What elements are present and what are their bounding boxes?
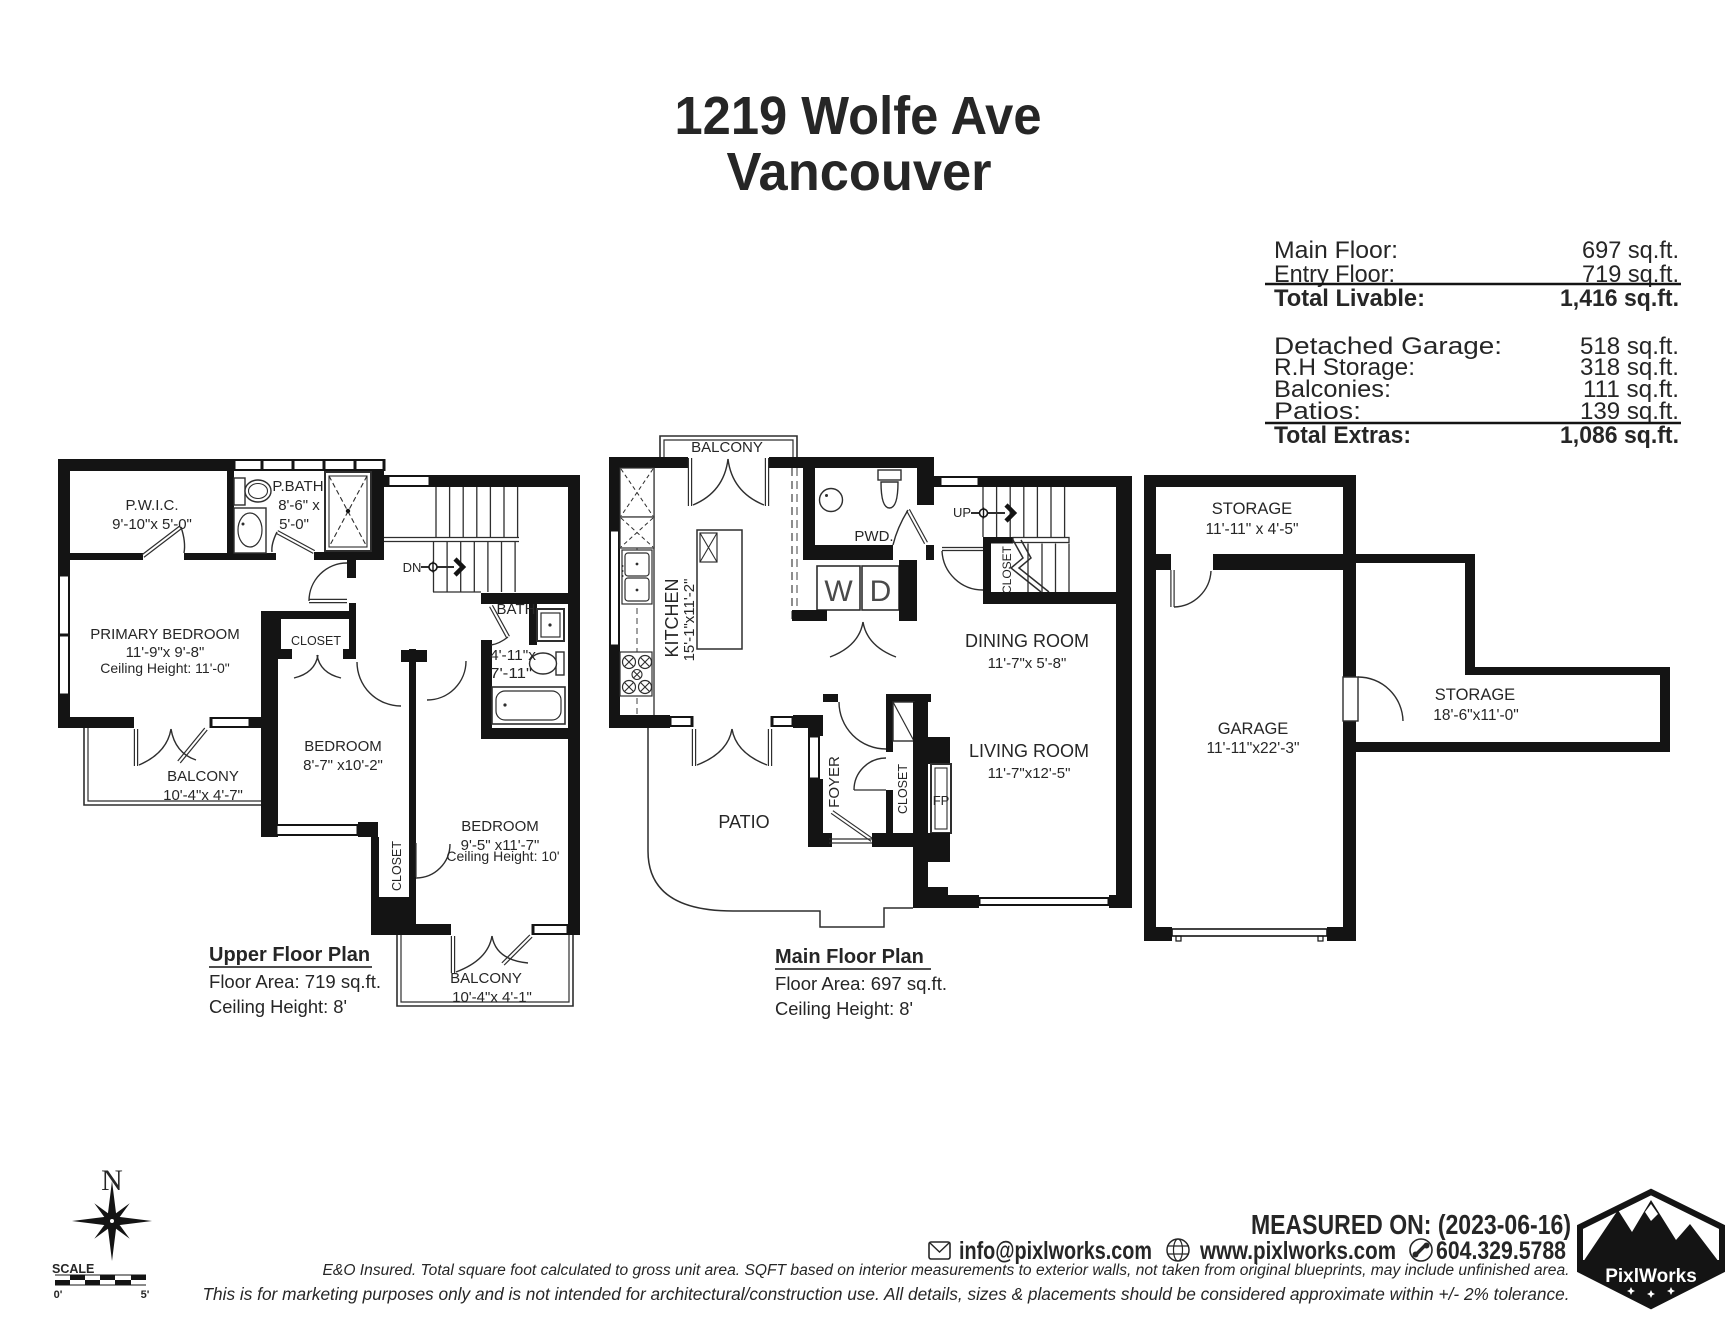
svg-text:FOYER: FOYER bbox=[826, 756, 843, 808]
svg-text:Total Extras:: Total Extras: bbox=[1274, 422, 1411, 449]
svg-text:1,416 sq.ft.: 1,416 sq.ft. bbox=[1560, 285, 1679, 312]
svg-text:Main Floor:: Main Floor: bbox=[1274, 237, 1398, 264]
svg-text:0': 0' bbox=[54, 1289, 63, 1301]
svg-text:Floor Area: 719 sq.ft.: Floor Area: 719 sq.ft. bbox=[209, 971, 381, 992]
svg-text:BALCONY: BALCONY bbox=[691, 439, 763, 456]
svg-text:11'-11"x22'-3": 11'-11"x22'-3" bbox=[1206, 740, 1299, 757]
svg-text:This is for marketing purposes: This is for marketing purposes only and … bbox=[203, 1284, 1570, 1304]
svg-text:5': 5' bbox=[141, 1289, 150, 1301]
svg-text:W: W bbox=[824, 575, 853, 608]
svg-text:7'-11": 7'-11" bbox=[490, 665, 532, 682]
svg-text:PWD.: PWD. bbox=[854, 528, 893, 545]
svg-text:697 sq.ft.: 697 sq.ft. bbox=[1582, 237, 1679, 264]
svg-text:FP: FP bbox=[933, 793, 950, 808]
svg-text:P.W.I.C.: P.W.I.C. bbox=[125, 497, 178, 514]
svg-text:DINING ROOM: DINING ROOM bbox=[965, 631, 1089, 651]
svg-text:Ceiling Height: 8': Ceiling Height: 8' bbox=[775, 998, 913, 1019]
svg-text:UP: UP bbox=[953, 505, 971, 520]
svg-text:8'-6" x: 8'-6" x bbox=[278, 497, 320, 514]
svg-text:BALCONY: BALCONY bbox=[167, 768, 239, 785]
svg-text:CLOSET: CLOSET bbox=[896, 764, 910, 814]
svg-text:5'-0": 5'-0" bbox=[279, 516, 309, 533]
svg-text:Ceiling Height: 8': Ceiling Height: 8' bbox=[209, 996, 347, 1017]
svg-text:10'-4"x 4'-1": 10'-4"x 4'-1" bbox=[452, 989, 532, 1006]
svg-text:E&O Insured. Total square foo: E&O Insured. Total square foot calculate… bbox=[323, 1262, 1570, 1279]
svg-text:KITCHEN: KITCHEN bbox=[662, 578, 682, 657]
svg-text:PixlWorks: PixlWorks bbox=[1605, 1266, 1697, 1287]
svg-text:Ceiling Height: 11'-0": Ceiling Height: 11'-0" bbox=[100, 660, 230, 676]
svg-text:Total Livable:: Total Livable: bbox=[1274, 285, 1425, 312]
svg-text:BALCONY: BALCONY bbox=[450, 970, 522, 987]
svg-text:P.BATH: P.BATH bbox=[272, 478, 323, 495]
svg-text:Patios:: Patios: bbox=[1274, 398, 1361, 425]
svg-text:LIVING ROOM: LIVING ROOM bbox=[969, 741, 1089, 761]
svg-text:info@pixlworks.com: info@pixlworks.com bbox=[959, 1237, 1152, 1265]
svg-text:STORAGE: STORAGE bbox=[1212, 500, 1292, 518]
svg-text:PRIMARY BEDROOM: PRIMARY BEDROOM bbox=[90, 626, 239, 643]
svg-text:604.329.5788: 604.329.5788 bbox=[1436, 1237, 1566, 1265]
svg-text:DN: DN bbox=[403, 560, 422, 575]
svg-text:11'-7"x12'-5": 11'-7"x12'-5" bbox=[988, 765, 1071, 782]
svg-text:SCALE: SCALE bbox=[52, 1262, 94, 1276]
svg-text:1,086 sq.ft.: 1,086 sq.ft. bbox=[1560, 422, 1679, 449]
svg-text:CLOSET: CLOSET bbox=[1000, 545, 1014, 594]
svg-text:BATH: BATH bbox=[497, 601, 536, 618]
svg-text:8'-7" x10'-2": 8'-7" x10'-2" bbox=[303, 757, 383, 774]
svg-text:4'-11"x: 4'-11"x bbox=[490, 647, 537, 664]
svg-text:STORAGE: STORAGE bbox=[1435, 686, 1515, 704]
svg-text:Floor Area: 697 sq.ft.: Floor Area: 697 sq.ft. bbox=[775, 973, 947, 994]
svg-text:1219 Wolfe Ave: 1219 Wolfe Ave bbox=[675, 86, 1042, 146]
svg-text:11'-11" x 4'-5": 11'-11" x 4'-5" bbox=[1205, 521, 1298, 538]
svg-text:Main Floor Plan: Main Floor Plan bbox=[775, 946, 924, 968]
svg-text:Vancouver: Vancouver bbox=[727, 142, 992, 202]
svg-text:PATIO: PATIO bbox=[718, 812, 769, 832]
svg-text:D: D bbox=[870, 575, 892, 608]
svg-text:15'-1"x11'-2": 15'-1"x11'-2" bbox=[681, 579, 698, 662]
svg-text:9'-10"x 5'-0": 9'-10"x 5'-0" bbox=[112, 516, 192, 533]
svg-text:BEDROOM: BEDROOM bbox=[461, 818, 539, 835]
svg-text:www.pixlworks.com: www.pixlworks.com bbox=[1199, 1237, 1396, 1265]
svg-text:GARAGE: GARAGE bbox=[1218, 720, 1289, 738]
svg-text:10'-4"x 4'-7": 10'-4"x 4'-7" bbox=[163, 787, 243, 804]
svg-text:CLOSET: CLOSET bbox=[390, 841, 404, 891]
svg-text:11'-7"x 5'-8": 11'-7"x 5'-8" bbox=[988, 655, 1067, 672]
svg-text:Upper Floor Plan: Upper Floor Plan bbox=[209, 944, 370, 966]
svg-text:BEDROOM: BEDROOM bbox=[304, 738, 382, 755]
svg-text:139 sq.ft.: 139 sq.ft. bbox=[1580, 398, 1679, 425]
svg-text:11'-9"x 9'-8": 11'-9"x 9'-8" bbox=[126, 644, 205, 661]
svg-text:CLOSET: CLOSET bbox=[291, 634, 341, 648]
svg-text:18'-6"x11'-0": 18'-6"x11'-0" bbox=[1433, 707, 1519, 724]
svg-text:MEASURED ON: (2023-06-16): MEASURED ON: (2023-06-16) bbox=[1251, 1209, 1571, 1240]
svg-text:Ceiling Height: 10': Ceiling Height: 10' bbox=[446, 848, 559, 864]
